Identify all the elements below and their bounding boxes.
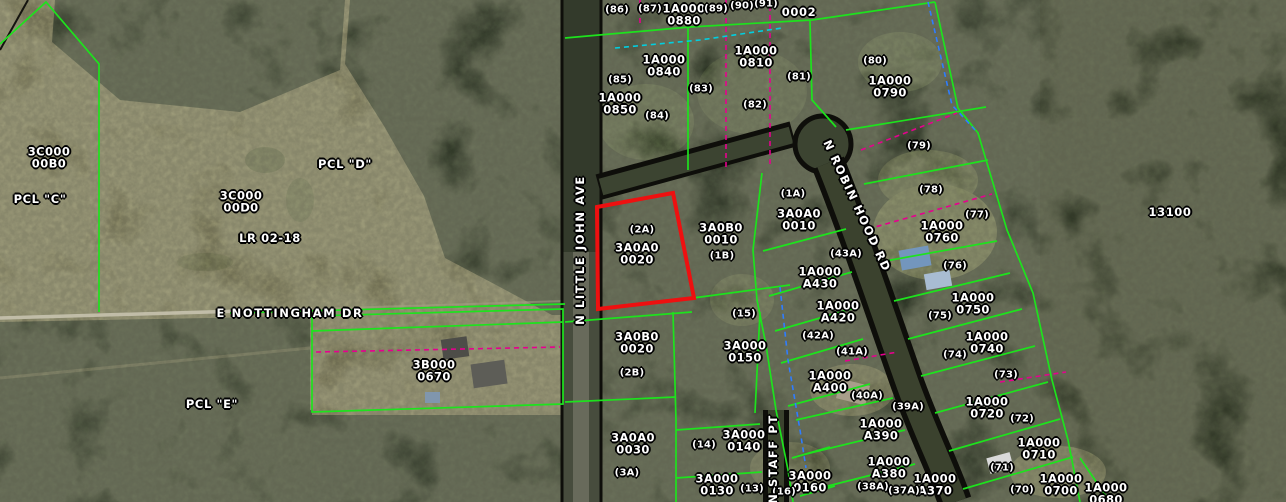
area-label: 0002 [782, 6, 816, 18]
lot-number-label: (16) [772, 488, 796, 499]
area-label: PCL "D" [318, 158, 372, 170]
lot-number-label: (13) [740, 485, 764, 496]
lot-number-label: (43A) [830, 250, 862, 261]
parcel-id-label: 3A000 0130 [696, 473, 739, 498]
lot-number-label: (73) [994, 371, 1018, 382]
area-label: PCL "E" [186, 398, 238, 410]
road-name-label: N STAFF PT [767, 414, 779, 502]
lot-number-label: (42A) [802, 332, 834, 343]
lot-number-label: (75) [928, 312, 952, 323]
lot-number-label: (70) [1010, 486, 1034, 497]
lot-number-label: (1A) [781, 190, 806, 201]
parcel-id-label: 3A0A0 0020 [615, 242, 659, 267]
lot-number-label: (38A) [857, 483, 889, 494]
lot-number-label: (41A) [836, 348, 868, 359]
parcel-id-label: 1A000 A420 [817, 300, 860, 325]
lot-number-label: (39A) [892, 403, 924, 414]
parcel-id-label: 1A000 A400 [809, 370, 852, 395]
parcel-id-label: 1A000 A390 [860, 418, 903, 443]
map-label-layer: 1A000 08801A000 08401A000 08501A000 0810… [0, 0, 1286, 502]
lot-number-label: (2B) [620, 369, 645, 380]
lot-number-label: (81) [787, 73, 811, 84]
parcel-id-label: 3A0A0 0030 [611, 432, 655, 457]
parcel-id-label: 1A000 0790 [869, 75, 912, 100]
lot-number-label: (91) [754, 0, 778, 10]
parcel-id-label: 3A000 0160 [789, 470, 832, 495]
parcel-id-label: 1A000 0740 [966, 331, 1009, 356]
lot-number-label: (85) [608, 76, 632, 87]
lot-number-label: (90) [730, 2, 754, 13]
area-label: LR 02-18 [239, 232, 301, 244]
parcel-id-label: 1A000 0850 [599, 92, 642, 117]
gis-parcel-map-viewport[interactable]: 1A000 08801A000 08401A000 08501A000 0810… [0, 0, 1286, 502]
lot-number-label: (77) [965, 211, 989, 222]
lot-number-label: (15) [732, 310, 756, 321]
road-name-label: E NOTTINGHAM DR [217, 307, 364, 319]
parcel-id-label: 1A000 0760 [921, 220, 964, 245]
parcel-id-label: 3A0B0 0010 [699, 222, 743, 247]
lot-number-label: (1B) [710, 252, 735, 263]
parcel-id-label: 1A000 0810 [735, 45, 778, 70]
parcel-id-label: 1A000 0720 [966, 396, 1009, 421]
parcel-id-label: 1A000 0840 [643, 54, 686, 79]
parcel-id-label: 3A0A0 0010 [777, 208, 821, 233]
road-name-label: N LITTLE JOHN AVE [574, 175, 586, 325]
parcel-id-label: 1A000 0880 [663, 3, 706, 28]
lot-number-label: (83) [689, 85, 713, 96]
area-label: PCL "C" [14, 193, 67, 205]
parcel-id-label: 3A000 0150 [724, 340, 767, 365]
parcel-id-label: 3A000 0140 [723, 429, 766, 454]
road-name-label: N ROBIN HOOD RD [821, 138, 893, 274]
parcel-id-label: 3C000 00D0 [220, 190, 262, 215]
lot-number-label: (14) [692, 441, 716, 452]
lot-number-label: (71) [990, 464, 1014, 475]
lot-number-label: (86) [605, 6, 629, 17]
lot-number-label: (76) [943, 262, 967, 273]
area-label: 13100 [1148, 206, 1191, 218]
lot-number-label: (37A) [888, 487, 920, 498]
lot-number-label: (78) [919, 186, 943, 197]
lot-number-label: (74) [943, 351, 967, 362]
parcel-id-label: 1A000 A430 [799, 266, 842, 291]
parcel-id-label: 1A000 A370 [914, 473, 957, 498]
lot-number-label: (87) [638, 5, 662, 16]
parcel-id-label: 1A000 0750 [952, 292, 995, 317]
parcel-id-label: 1A000 0680 [1085, 482, 1128, 502]
parcel-id-label: 1A000 A380 [868, 456, 911, 481]
lot-number-label: (40A) [851, 392, 883, 403]
lot-number-label: (80) [863, 57, 887, 68]
lot-number-label: (3A) [615, 469, 640, 480]
parcel-id-label: 3A0B0 0020 [615, 331, 659, 356]
lot-number-label: (79) [907, 142, 931, 153]
parcel-id-label: 3C000 00B0 [28, 146, 70, 171]
lot-number-label: (72) [1010, 415, 1034, 426]
parcel-id-label: 1A000 0700 [1040, 473, 1083, 498]
lot-number-label: (82) [743, 101, 767, 112]
lot-number-label: (89) [704, 5, 728, 16]
parcel-id-label: 1A000 0710 [1018, 437, 1061, 462]
lot-number-label: (2A) [630, 226, 655, 237]
lot-number-label: (84) [645, 112, 669, 123]
parcel-id-label: 3B000 0670 [413, 359, 456, 384]
